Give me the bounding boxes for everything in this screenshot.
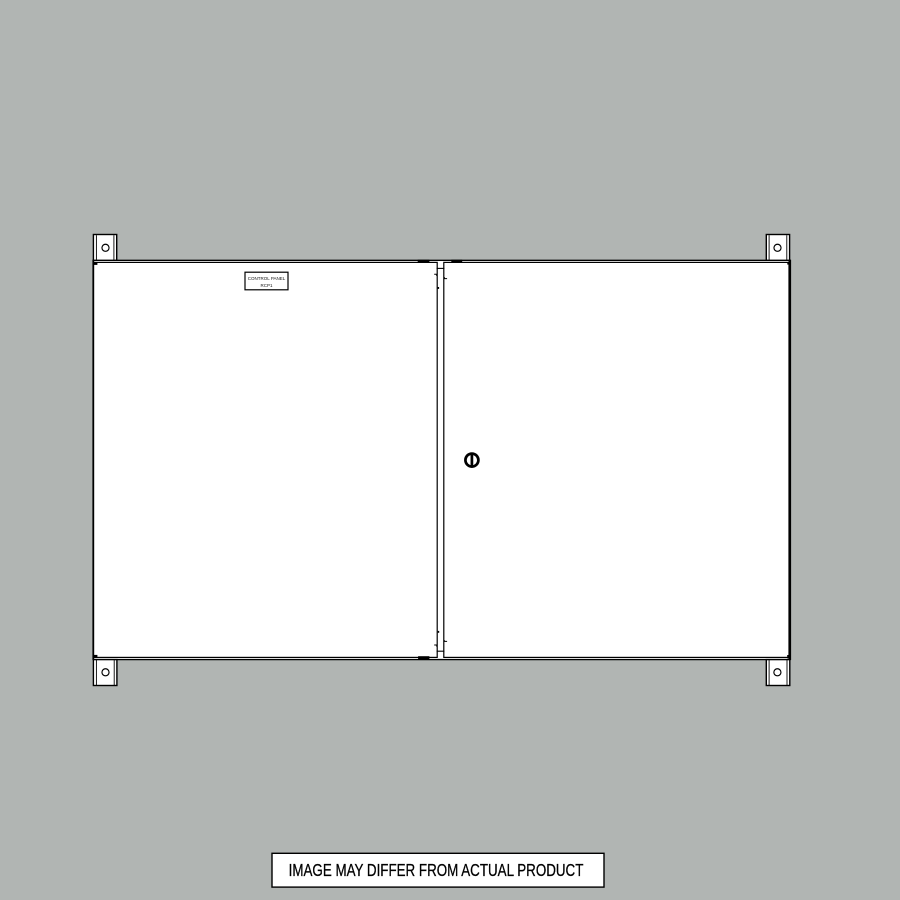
svg-text:RCP1: RCP1 — [260, 283, 273, 288]
svg-text:CONTROL PANEL: CONTROL PANEL — [248, 276, 286, 281]
svg-text:IMAGE MAY DIFFER FROM ACTUAL P: IMAGE MAY DIFFER FROM ACTUAL PRODUCT — [289, 862, 584, 881]
